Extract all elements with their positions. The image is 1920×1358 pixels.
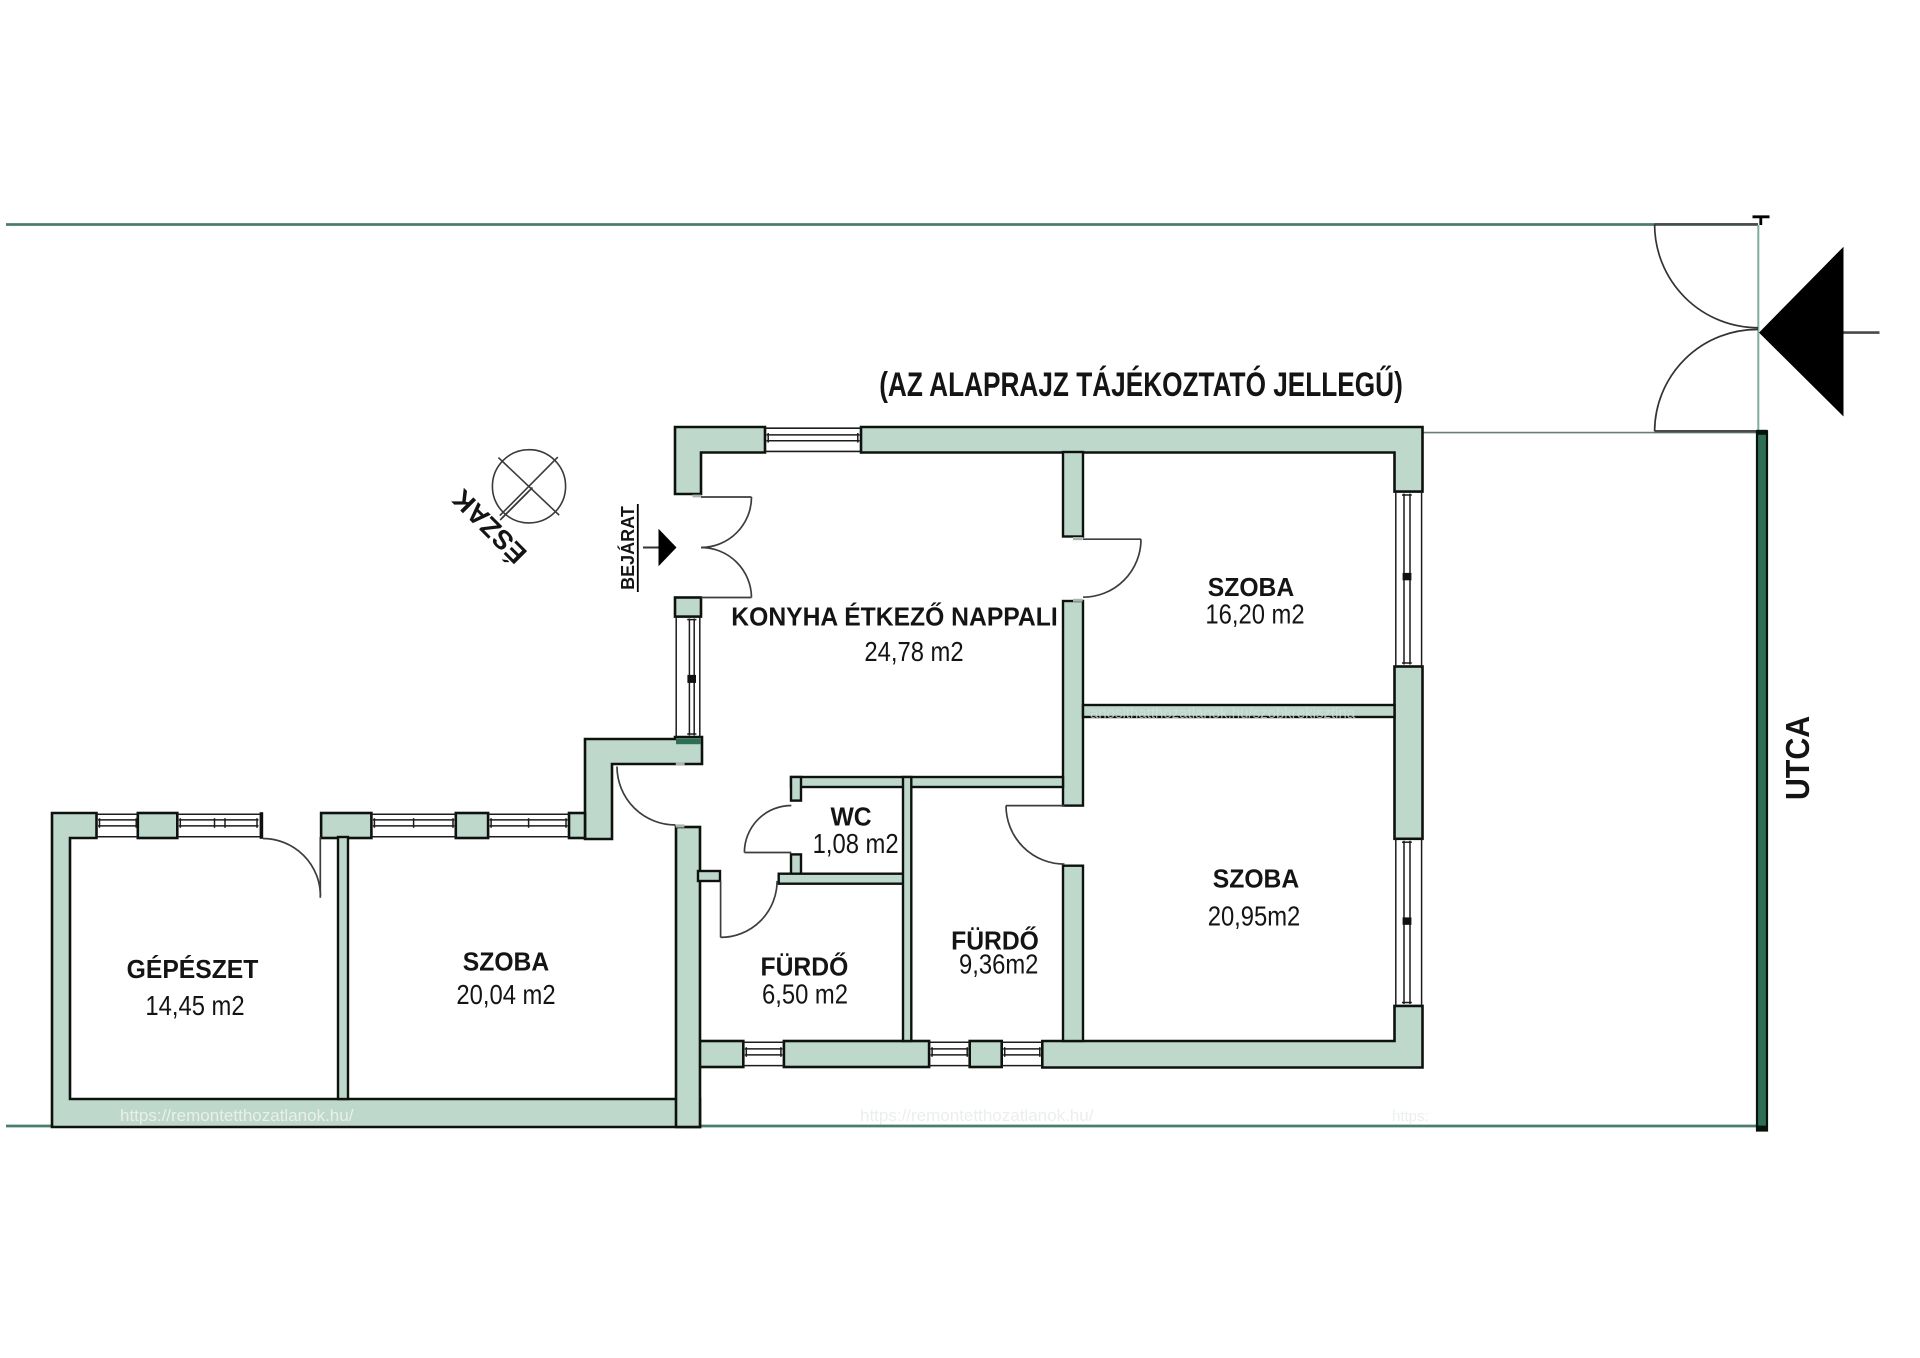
svg-text:https:: https:	[1392, 1108, 1429, 1125]
svg-text:(AZ ALAPRAJZ TÁJÉKOZTATÓ JELLE: (AZ ALAPRAJZ TÁJÉKOZTATÓ JELLEGŰ)	[879, 363, 1403, 404]
svg-text:https://remontetthozatlanok.hu: https://remontetthozatlanok.hu/	[860, 1106, 1094, 1125]
svg-text:SZOBA: SZOBA	[463, 948, 549, 977]
svg-text:https://remontetthozatlanok.hu: https://remontetthozatlanok.hu/	[120, 1106, 354, 1125]
svg-text:BEJÁRAT: BEJÁRAT	[617, 506, 638, 590]
svg-text:UTCA: UTCA	[1779, 716, 1816, 800]
svg-text:24,78 m2: 24,78 m2	[864, 635, 963, 667]
svg-text:6,50 m2: 6,50 m2	[762, 978, 848, 1010]
svg-text:20,95m2: 20,95m2	[1208, 900, 1301, 932]
svg-text:GÉPÉSZET: GÉPÉSZET	[127, 954, 259, 984]
svg-text:1,08 m2: 1,08 m2	[813, 827, 899, 859]
svg-text:14,45 m2: 14,45 m2	[145, 989, 244, 1021]
svg-text:16,20 m2: 16,20 m2	[1205, 598, 1304, 630]
svg-text:9,36m2: 9,36m2	[959, 948, 1038, 980]
svg-text:anosithatthozatlanok.hu/szobkr: anosithatthozatlanok.hu/szobkrekisztina	[1090, 705, 1356, 722]
svg-text:SZOBA: SZOBA	[1213, 865, 1299, 894]
svg-text:KONYHA ÉTKEZŐ NAPPALI: KONYHA ÉTKEZŐ NAPPALI	[731, 602, 1057, 632]
svg-text:20,04 m2: 20,04 m2	[456, 978, 555, 1010]
